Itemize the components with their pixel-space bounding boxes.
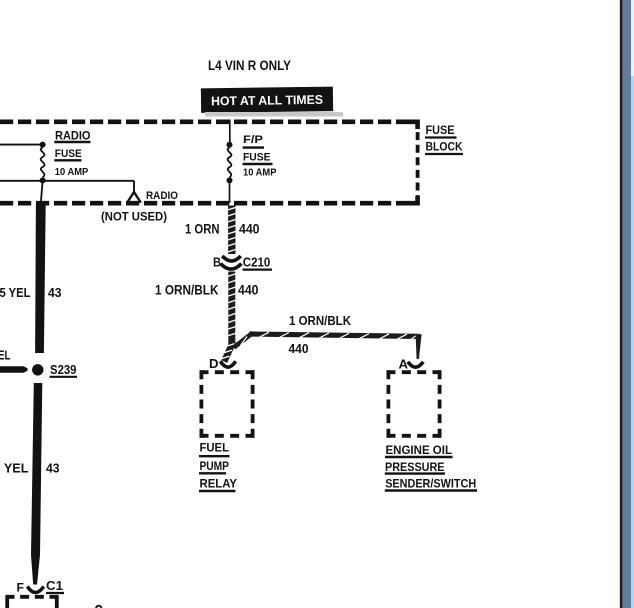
svg-text:43: 43 [48,285,62,300]
svg-text:S239: S239 [50,362,77,377]
svg-text:440: 440 [239,221,260,236]
svg-text:F/P: F/P [243,134,263,146]
svg-text:L4 VIN R ONLY: L4 VIN R ONLY [208,58,291,74]
svg-text:PRESSURE: PRESSURE [385,460,445,474]
svg-text:PUMP: PUMP [200,459,230,473]
svg-text:HOT AT ALL TIMES: HOT AT ALL TIMES [211,93,323,109]
svg-text:(NOT USED): (NOT USED) [101,209,167,223]
svg-text:10 AMP: 10 AMP [55,167,89,178]
svg-text:C1: C1 [46,578,63,593]
svg-text:A: A [399,357,409,372]
svg-text:RADIO: RADIO [55,128,91,142]
svg-text:FUEL: FUEL [200,441,230,455]
svg-text:FUSE: FUSE [243,151,271,163]
svg-text:5 YEL: 5 YEL [0,285,31,300]
svg-text:43: 43 [46,460,60,475]
svg-text:BLOCK: BLOCK [426,140,463,154]
svg-text:SENDER/SWITCH: SENDER/SWITCH [385,476,476,490]
svg-text:440: 440 [238,282,259,297]
svg-text:RELAY: RELAY [200,477,238,491]
svg-text:D: D [209,356,219,371]
svg-text:1 ORN/BLK: 1 ORN/BLK [155,282,219,297]
svg-text:FUSE: FUSE [426,123,455,137]
svg-text:1 ORN: 1 ORN [185,221,220,236]
svg-text:EL: EL [0,349,11,363]
svg-text:10 AMP: 10 AMP [243,168,277,179]
svg-text:ENGINE OIL: ENGINE OIL [386,443,453,457]
svg-text:C210: C210 [243,255,270,270]
svg-text:FUSE: FUSE [55,148,82,160]
svg-text:3 YEL: 3 YEL [0,460,29,475]
svg-text:1 ORN/BLK: 1 ORN/BLK [289,313,352,328]
svg-text:F: F [17,580,25,594]
svg-text:440: 440 [289,341,309,356]
svg-text:B: B [213,255,221,270]
svg-text:RADIO: RADIO [146,190,178,202]
